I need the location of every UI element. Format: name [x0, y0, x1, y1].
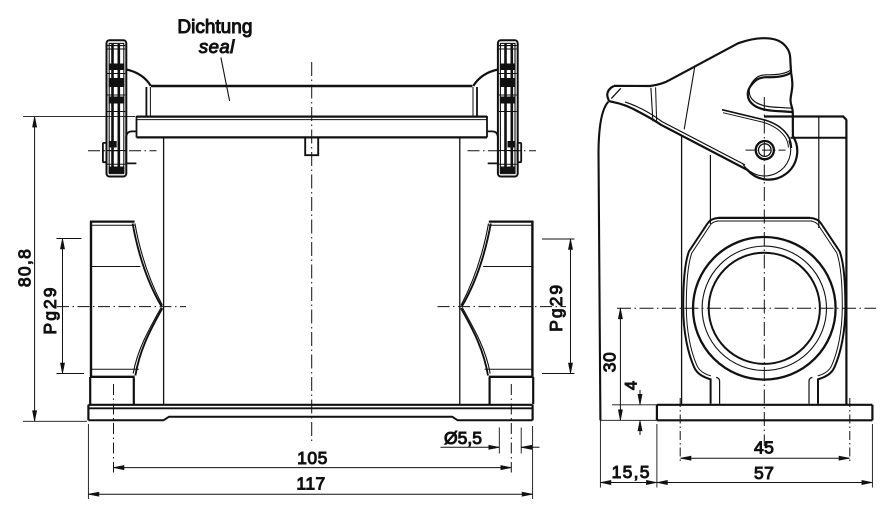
svg-text:30: 30 — [600, 352, 620, 372]
svg-text:4: 4 — [623, 381, 641, 390]
svg-text:Dichtung: Dichtung — [177, 17, 252, 38]
svg-text:15,5: 15,5 — [612, 462, 651, 482]
svg-text:Pg29: Pg29 — [40, 286, 60, 335]
svg-text:Ø5,5: Ø5,5 — [444, 428, 482, 448]
svg-text:80,8: 80,8 — [14, 248, 34, 287]
svg-text:Pg29: Pg29 — [546, 283, 566, 332]
svg-text:105: 105 — [297, 448, 328, 468]
svg-text:57: 57 — [754, 463, 774, 483]
svg-text:45: 45 — [754, 437, 774, 457]
svg-text:seal: seal — [199, 36, 235, 57]
svg-text:117: 117 — [296, 474, 325, 494]
